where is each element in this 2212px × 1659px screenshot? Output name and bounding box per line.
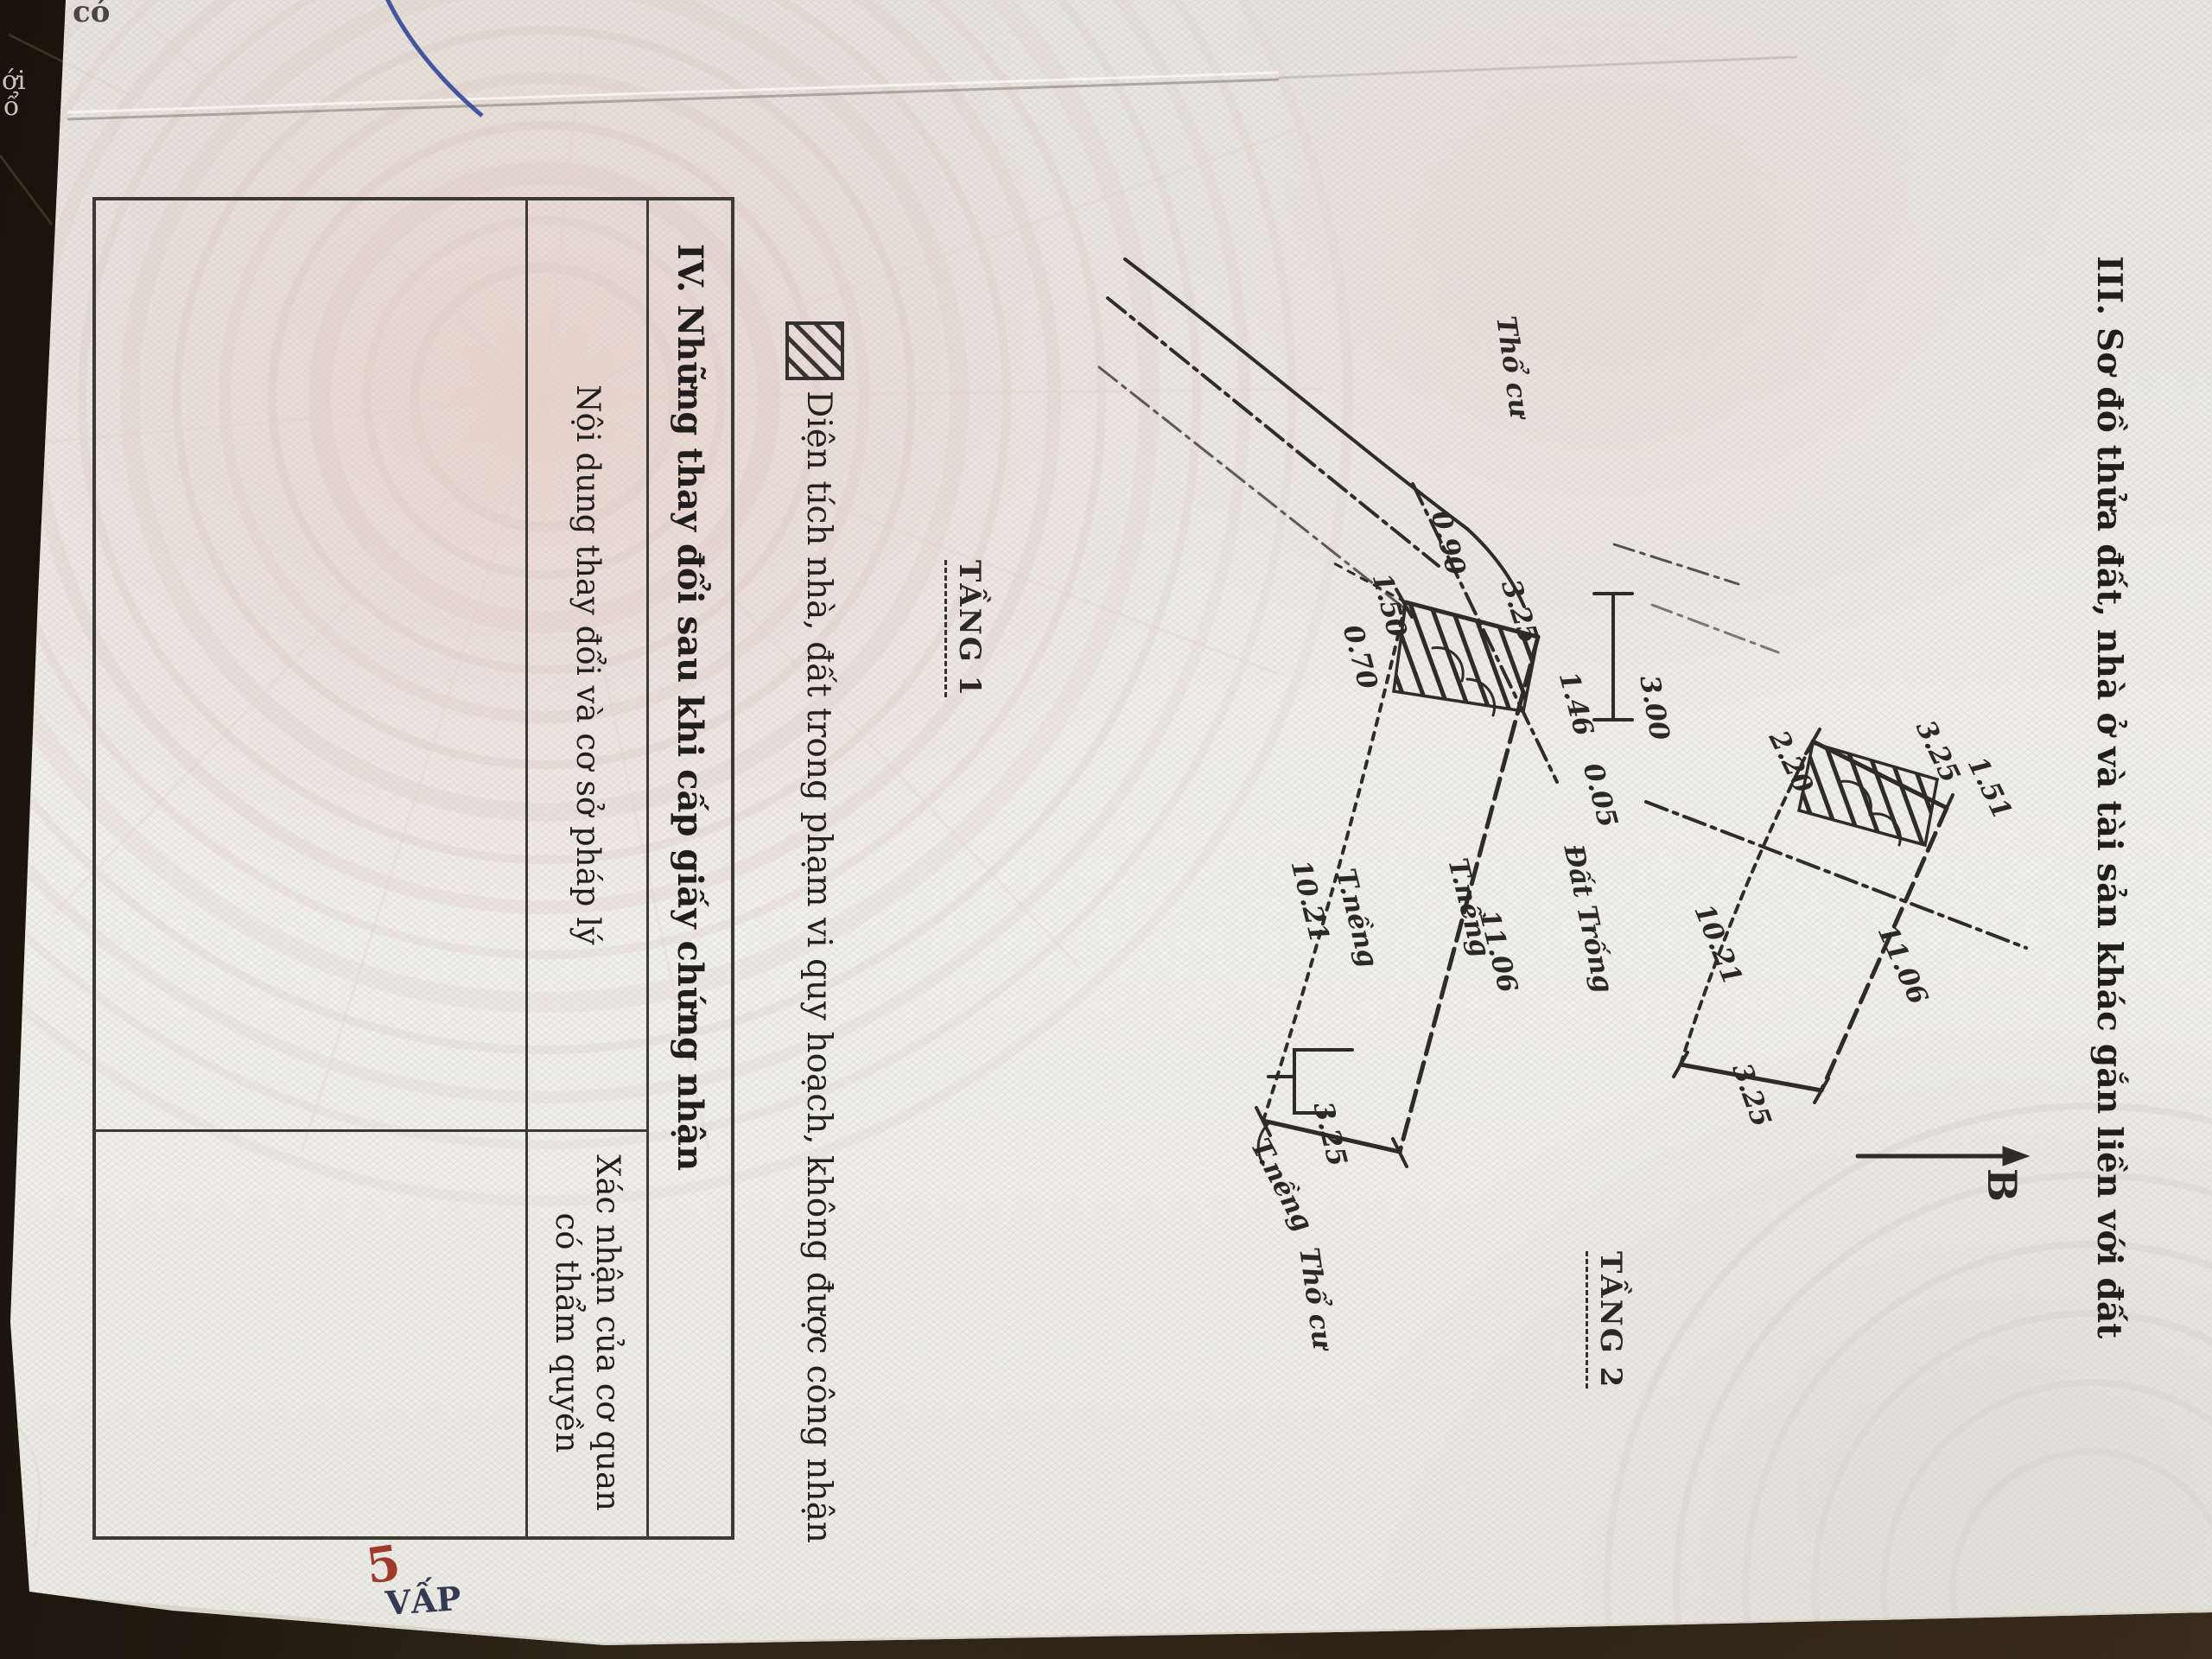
section-4-title: IV. Những thay đổi sau khi cấp giấy chứn… <box>670 200 710 1171</box>
floor1-caption: TẦNG 1 <box>944 560 987 697</box>
col-header-authority-line2: có thẩm quyền <box>547 1154 587 1511</box>
edge-fragment-text: ổ <box>3 92 19 122</box>
north-arrow-icon <box>1858 1147 2029 1166</box>
floor1-plot-sketch <box>1099 259 1778 1166</box>
document-content-rotated: III. Sơ đồ thửa đất, nhà ở và tài sản kh… <box>0 0 2212 1659</box>
col-header-authority: Xác nhận của cơ quan có thẩm quyền <box>528 1129 646 1536</box>
photo-of-land-certificate: { "page": { "section3_title": "III. Sơ đ… <box>0 0 2212 1659</box>
edge-fragment-text: ới <box>2 66 26 96</box>
table-header-row: Nội dung thay đổi và cơ sở pháp lý Xác n… <box>525 200 646 1536</box>
table-column-divider <box>96 1129 649 1132</box>
col-header-authority-line1: Xác nhận của cơ quan <box>588 1154 627 1511</box>
floor2-caption: TẦNG 2 <box>1586 1251 1628 1389</box>
north-arrow-label: B <box>1979 1168 2025 1202</box>
section-4-title-row: IV. Những thay đổi sau khi cấp giấy chứn… <box>646 200 731 1536</box>
col-header-change-content: Nội dung thay đổi và cơ sở pháp lý <box>528 200 646 1129</box>
legend-text: Diện tích nhà, đất trong phạm vi quy hoạ… <box>799 391 838 1543</box>
legend-hatch-swatch <box>785 321 844 380</box>
certificate-paper-sheet: III. Sơ đồ thửa đất, nhà ở và tài sản kh… <box>0 0 2212 1659</box>
section-4-table: IV. Những thay đổi sau khi cấp giấy chứn… <box>92 197 734 1540</box>
